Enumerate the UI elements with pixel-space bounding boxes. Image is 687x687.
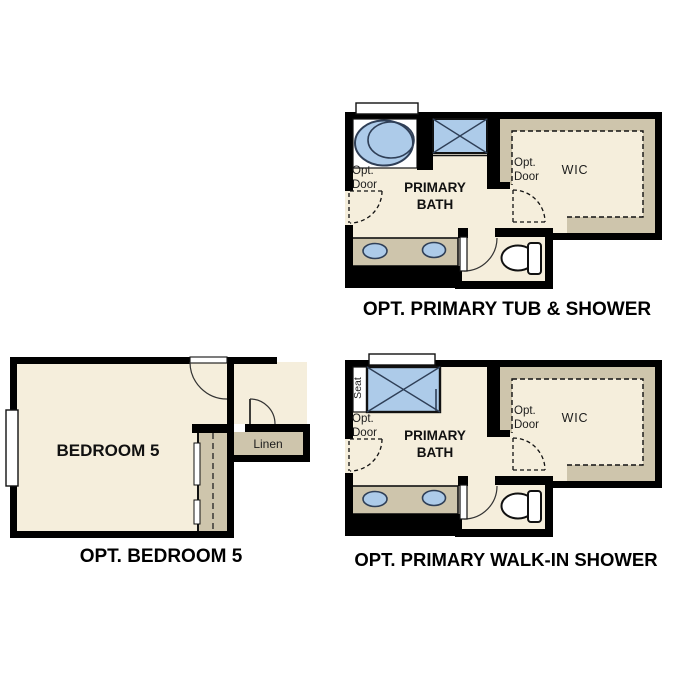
room-label-wic-tub-plan: WIC xyxy=(554,163,596,177)
closet-door-panel-upper xyxy=(194,443,200,485)
room-label-bedroom5: BEDROOM 5 xyxy=(48,441,168,461)
label-seat: Seat xyxy=(352,373,366,403)
plan-primary-walkin-shower xyxy=(345,354,662,537)
tub-shower-wall xyxy=(417,112,433,170)
title-opt-primary-walkin-shower: OPT. PRIMARY WALK-IN SHOWER xyxy=(336,549,676,571)
bedroom-door-leaf xyxy=(190,357,227,363)
label-opt-door-wic-walkin-plan: Opt. Door xyxy=(514,404,550,433)
closet-door-panel-lower xyxy=(194,500,200,524)
label-linen: Linen xyxy=(238,437,298,451)
floorplan-page: Opt. Door PRIMARY BATH Opt. Door WIC OPT… xyxy=(0,0,687,687)
room-label-primary-bath-tub-plan: PRIMARY BATH xyxy=(399,180,471,214)
walkin-shower-icon xyxy=(367,367,440,412)
label-opt-door-bath-tub-plan: Opt. Door xyxy=(352,164,388,193)
title-opt-primary-tub-shower: OPT. PRIMARY TUB & SHOWER xyxy=(340,299,674,321)
bedroom-window xyxy=(6,410,18,486)
shower-icon xyxy=(433,119,487,156)
label-opt-door-bath-walkin-plan: Opt. Door xyxy=(352,412,388,441)
hall-floor xyxy=(234,362,307,424)
window-above-tub xyxy=(356,103,418,114)
floorplan-drawing xyxy=(0,0,687,687)
label-opt-door-wic-tub-plan: Opt. Door xyxy=(514,156,550,185)
window-above-shower xyxy=(369,354,435,365)
room-label-primary-bath-walkin-plan: PRIMARY BATH xyxy=(399,428,471,462)
title-opt-bedroom5: OPT. BEDROOM 5 xyxy=(25,546,297,568)
room-label-wic-walkin-plan: WIC xyxy=(554,411,596,425)
tub-icon xyxy=(355,121,413,166)
plan-primary-tub-shower xyxy=(345,103,662,289)
